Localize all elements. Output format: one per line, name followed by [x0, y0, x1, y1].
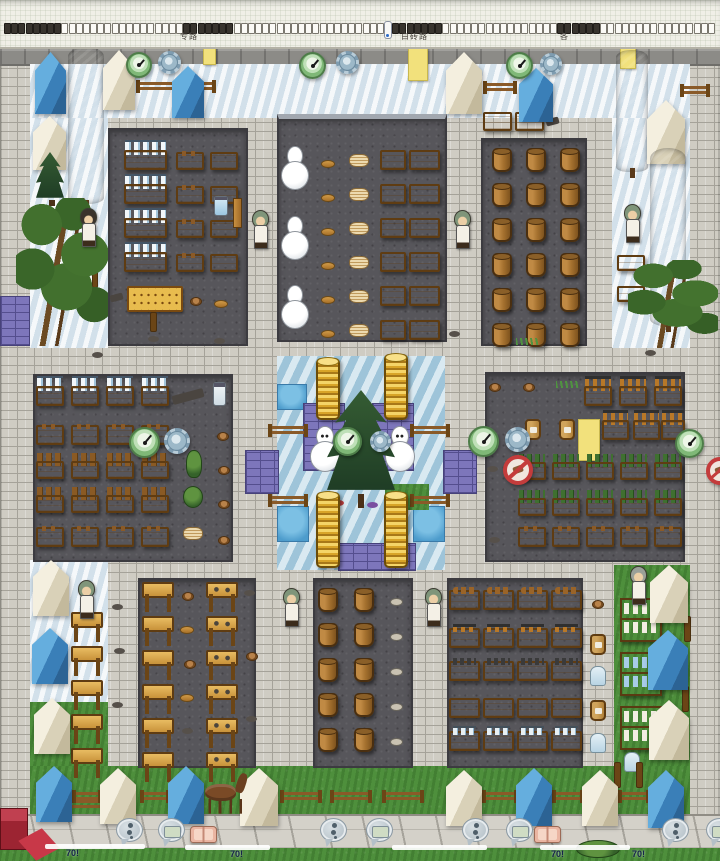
wooden-table[interactable]	[517, 661, 548, 681]
wooden-crate[interactable]	[380, 150, 406, 170]
wooden-table[interactable]	[517, 628, 548, 648]
item-slot-icon[interactable]	[377, 23, 384, 34]
item-slot-icon[interactable]	[11, 23, 18, 34]
gear-icon[interactable]	[370, 431, 391, 452]
bowl[interactable]	[390, 668, 403, 676]
bread-table[interactable]	[141, 487, 169, 513]
small-item[interactable]	[244, 590, 255, 596]
wooden-crate[interactable]	[409, 184, 440, 204]
item-slot-icon[interactable]	[112, 23, 119, 34]
wooden-table[interactable]	[586, 527, 614, 547]
item-slot-icon[interactable]	[327, 23, 334, 34]
clay-pot[interactable]	[492, 323, 512, 347]
pie[interactable]	[190, 297, 202, 306]
item-slot-icon[interactable]	[471, 23, 478, 34]
item-slot-icon[interactable]	[658, 23, 665, 34]
bottle-table[interactable]	[106, 376, 134, 406]
speech-bubble-icon[interactable]	[366, 818, 393, 842]
pie[interactable]	[217, 432, 229, 441]
item-slot-icon[interactable]	[643, 23, 650, 34]
clock-icon[interactable]	[506, 52, 533, 79]
item-slot-icon[interactable]	[119, 23, 126, 34]
item-slot-icon[interactable]	[334, 23, 341, 34]
item-slot-icon[interactable]	[363, 23, 370, 34]
wooden-table[interactable]	[483, 661, 514, 681]
item-slot-icon[interactable]	[104, 23, 111, 34]
wooden-fence[interactable]	[680, 84, 710, 97]
tent[interactable]	[32, 628, 68, 684]
bottle-rack-table[interactable]	[654, 454, 682, 480]
wooden-table[interactable]	[517, 731, 548, 751]
clay-pot[interactable]	[318, 658, 338, 682]
item-slot-icon[interactable]	[255, 23, 262, 34]
item-slot-icon[interactable]	[650, 23, 657, 34]
wooden-table[interactable]	[210, 254, 238, 272]
cypress-tree[interactable]	[68, 47, 104, 204]
wooden-table[interactable]	[449, 590, 480, 610]
item-slot-icon[interactable]	[305, 23, 312, 34]
bottle-rack-table[interactable]	[552, 490, 580, 516]
clay-pot[interactable]	[318, 693, 338, 717]
item-slot-icon[interactable]	[298, 23, 305, 34]
item-slot-icon[interactable]	[370, 23, 377, 34]
item-slot-icon[interactable]	[291, 23, 298, 34]
plate-stack[interactable]	[349, 256, 369, 269]
bottle-rack-table[interactable]	[620, 454, 648, 480]
wooden-crate[interactable]	[409, 150, 440, 170]
item-slot-icon[interactable]	[262, 23, 269, 34]
clay-pot[interactable]	[526, 148, 546, 172]
bottle-rack-table[interactable]	[586, 490, 614, 516]
wood-post[interactable]	[636, 762, 643, 788]
pie[interactable]	[218, 466, 230, 475]
bread-table[interactable]	[106, 487, 134, 513]
glass-jar[interactable]	[214, 196, 228, 216]
bread-table[interactable]	[106, 453, 134, 479]
open-book[interactable]	[534, 826, 561, 843]
wooden-fence[interactable]	[552, 790, 584, 803]
wooden-fence[interactable]	[268, 424, 308, 437]
wooden-table[interactable]	[551, 628, 582, 648]
clay-pot[interactable]	[354, 658, 374, 682]
wooden-fence[interactable]	[140, 790, 170, 803]
clay-pot[interactable]	[492, 183, 512, 207]
item-slot-icon[interactable]	[226, 23, 233, 34]
clock-icon[interactable]	[126, 52, 152, 78]
bread-loaf[interactable]	[180, 694, 194, 702]
item-slot-icon[interactable]	[341, 23, 348, 34]
clay-pot[interactable]	[526, 253, 546, 277]
plant-sprout[interactable]	[556, 381, 580, 388]
wooden-table[interactable]	[206, 684, 238, 714]
pie[interactable]	[182, 592, 194, 601]
wooden-table[interactable]	[449, 628, 480, 648]
snowman[interactable]	[281, 146, 307, 190]
thermometer-icon[interactable]	[384, 21, 392, 39]
bottle-table[interactable]	[124, 174, 167, 204]
item-slot-icon[interactable]	[500, 23, 507, 34]
bowl[interactable]	[390, 633, 403, 641]
wooden-table[interactable]	[176, 220, 204, 238]
clay-pot[interactable]	[492, 288, 512, 312]
item-slot-icon[interactable]	[90, 23, 97, 34]
wooden-fence[interactable]	[382, 790, 424, 803]
clay-pot[interactable]	[492, 148, 512, 172]
clay-pot[interactable]	[354, 693, 374, 717]
bread-loaf[interactable]	[321, 296, 335, 304]
storage-crock[interactable]	[590, 634, 606, 655]
carved-sign[interactable]	[127, 286, 183, 312]
pie[interactable]	[218, 536, 230, 545]
small-item[interactable]	[246, 716, 257, 722]
bottle-rack-table[interactable]	[518, 490, 546, 516]
item-slot-icon[interactable]	[450, 23, 457, 34]
small-item[interactable]	[92, 352, 103, 358]
gear-icon[interactable]	[336, 51, 359, 74]
plate-stack[interactable]	[183, 527, 203, 540]
plate-stack[interactable]	[349, 324, 369, 337]
bread-table[interactable]	[36, 487, 64, 513]
wooden-table[interactable]	[517, 698, 548, 718]
bread-loaf[interactable]	[321, 194, 335, 202]
clay-pot[interactable]	[492, 218, 512, 242]
gear-icon[interactable]	[158, 51, 181, 74]
item-slot-icon[interactable]	[464, 23, 471, 34]
tent[interactable]	[34, 698, 70, 754]
item-slot-icon[interactable]	[708, 23, 715, 34]
item-slot-icon[interactable]	[435, 23, 442, 34]
clay-pot[interactable]	[354, 728, 374, 752]
item-slot-icon[interactable]	[686, 23, 693, 34]
item-slot-icon[interactable]	[234, 23, 241, 34]
tent[interactable]	[648, 630, 688, 690]
tent[interactable]	[100, 768, 136, 824]
bottle-table[interactable]	[141, 376, 169, 406]
wooden-table[interactable]	[206, 650, 238, 680]
wooden-table[interactable]	[142, 582, 174, 612]
wooden-table[interactable]	[449, 731, 480, 751]
item-slot-icon[interactable]	[241, 23, 248, 34]
item-slot-icon[interactable]	[521, 23, 528, 34]
item-slot-icon[interactable]	[600, 23, 607, 34]
item-slot-icon[interactable]	[428, 23, 435, 34]
speech-bubble-icon[interactable]	[462, 818, 489, 842]
item-slot-icon[interactable]	[83, 23, 90, 34]
clay-pot[interactable]	[560, 183, 580, 207]
bottle-rack-table[interactable]	[633, 410, 660, 440]
no-entry-icon[interactable]	[706, 457, 720, 485]
clock-icon[interactable]	[129, 427, 160, 458]
villager[interactable]	[281, 588, 301, 628]
bottle-table[interactable]	[124, 140, 167, 170]
item-slot-icon[interactable]	[514, 23, 521, 34]
pine-tree[interactable]	[628, 260, 718, 348]
bottle-table[interactable]	[36, 376, 64, 406]
clay-pot[interactable]	[318, 728, 338, 752]
clay-pot[interactable]	[560, 288, 580, 312]
villager[interactable]	[250, 210, 270, 250]
wooden-table[interactable]	[71, 527, 99, 547]
wooden-fence[interactable]	[410, 494, 450, 507]
item-slot-icon[interactable]	[478, 23, 485, 34]
wood-plank[interactable]	[233, 198, 242, 228]
item-slot-icon[interactable]	[312, 23, 319, 34]
pie[interactable]	[246, 652, 258, 661]
small-item[interactable]	[114, 648, 125, 654]
paper-note[interactable]	[408, 47, 428, 81]
wooden-fence[interactable]	[330, 790, 372, 803]
gear-icon[interactable]	[540, 53, 562, 75]
wooden-fence[interactable]	[618, 790, 650, 803]
wooden-table[interactable]	[449, 661, 480, 681]
bottle-rack-table[interactable]	[654, 490, 682, 516]
item-slot-icon[interactable]	[4, 23, 11, 34]
pie[interactable]	[218, 500, 230, 509]
item-slot-icon[interactable]	[392, 23, 399, 34]
speech-bubble-icon[interactable]	[506, 818, 533, 842]
wooden-fence[interactable]	[482, 790, 518, 803]
bush[interactable]	[186, 450, 202, 478]
wooden-table[interactable]	[210, 152, 238, 170]
wooden-table[interactable]	[71, 748, 103, 778]
wooden-table[interactable]	[483, 628, 514, 648]
wooden-table[interactable]	[106, 527, 134, 547]
item-slot-icon[interactable]	[162, 23, 169, 34]
plate-stack[interactable]	[349, 154, 369, 167]
item-slot-icon[interactable]	[76, 23, 83, 34]
plate-stack[interactable]	[349, 222, 369, 235]
tent[interactable]	[168, 766, 204, 824]
tent[interactable]	[582, 770, 618, 826]
bottle-table[interactable]	[124, 208, 167, 238]
item-slot-icon[interactable]	[219, 23, 226, 34]
wooden-table[interactable]	[206, 718, 238, 748]
wooden-crate[interactable]	[380, 252, 406, 272]
snowman[interactable]	[281, 285, 307, 329]
speech-bubble-icon[interactable]	[320, 818, 347, 842]
small-item[interactable]	[148, 336, 159, 342]
item-slot-icon[interactable]	[248, 23, 255, 34]
item-slot-icon[interactable]	[47, 23, 54, 34]
bottle-rack-table[interactable]	[619, 376, 647, 406]
item-slot-icon[interactable]	[40, 23, 47, 34]
item-slot-icon[interactable]	[61, 23, 68, 34]
item-slot-icon[interactable]	[169, 23, 176, 34]
clay-pot[interactable]	[526, 218, 546, 242]
item-slot-icon[interactable]	[348, 23, 355, 34]
snowman[interactable]	[281, 216, 307, 260]
wooden-table[interactable]	[71, 646, 103, 676]
item-slot-icon[interactable]	[536, 23, 543, 34]
item-slot-icon[interactable]	[672, 23, 679, 34]
item-slot-icon[interactable]	[593, 23, 600, 34]
bread-table[interactable]	[36, 453, 64, 479]
small-item[interactable]	[449, 331, 460, 337]
item-slot-icon[interactable]	[507, 23, 514, 34]
wooden-table[interactable]	[551, 590, 582, 610]
bowl[interactable]	[390, 598, 403, 606]
wooden-crate[interactable]	[409, 286, 440, 306]
item-slot-icon[interactable]	[529, 23, 536, 34]
villager[interactable]	[76, 580, 96, 620]
bottle-rack-table[interactable]	[602, 410, 629, 440]
wooden-table[interactable]	[483, 698, 514, 718]
wooden-crate[interactable]	[483, 112, 512, 131]
plate-stack[interactable]	[349, 290, 369, 303]
item-slot-icon[interactable]	[629, 23, 636, 34]
wooden-table[interactable]	[517, 590, 548, 610]
plate-stack[interactable]	[349, 188, 369, 201]
item-slot-icon[interactable]	[636, 23, 643, 34]
item-slot-icon[interactable]	[18, 23, 25, 34]
open-book[interactable]	[190, 826, 217, 843]
storage-crock[interactable]	[559, 419, 575, 440]
item-slot-icon[interactable]	[140, 23, 147, 34]
clay-pot[interactable]	[492, 253, 512, 277]
bottle-table[interactable]	[71, 376, 99, 406]
clay-pot[interactable]	[560, 253, 580, 277]
pie[interactable]	[592, 600, 604, 609]
storage-crock[interactable]	[590, 700, 606, 721]
villager[interactable]	[423, 588, 443, 628]
bread-loaf[interactable]	[321, 160, 335, 168]
tent[interactable]	[649, 700, 689, 760]
item-slot-icon[interactable]	[198, 23, 205, 34]
bowl[interactable]	[390, 738, 403, 746]
wooden-table[interactable]	[483, 590, 514, 610]
speech-bubble-icon[interactable]	[662, 818, 689, 842]
wooden-crate[interactable]	[380, 320, 406, 340]
gear-icon[interactable]	[164, 428, 190, 454]
wooden-table[interactable]	[483, 731, 514, 751]
bottle-rack-table[interactable]	[586, 454, 614, 480]
pie[interactable]	[184, 660, 196, 669]
paper-note[interactable]	[203, 47, 216, 65]
wooden-crate[interactable]	[409, 252, 440, 272]
bread-loaf[interactable]	[321, 262, 335, 270]
wooden-table[interactable]	[142, 684, 174, 714]
item-slot-icon[interactable]	[486, 23, 493, 34]
small-item[interactable]	[112, 702, 123, 708]
wooden-crate[interactable]	[409, 320, 440, 340]
bread-loaf[interactable]	[214, 300, 228, 308]
bottle-rack-table[interactable]	[654, 376, 682, 406]
bottle-rack-table[interactable]	[584, 376, 612, 406]
item-slot-icon[interactable]	[147, 23, 154, 34]
villager[interactable]	[452, 210, 472, 250]
clock-icon[interactable]	[468, 426, 499, 457]
item-slot-icon[interactable]	[586, 23, 593, 34]
speech-bubble-icon[interactable]	[158, 818, 185, 842]
small-item[interactable]	[112, 604, 123, 610]
villager[interactable]	[628, 566, 648, 606]
speech-bubble-icon[interactable]	[116, 818, 143, 842]
wooden-table[interactable]	[176, 186, 204, 204]
plant-sprout[interactable]	[516, 338, 540, 345]
clay-pot[interactable]	[354, 623, 374, 647]
bread-table[interactable]	[71, 487, 99, 513]
bell-jar[interactable]	[590, 666, 606, 686]
item-slot-icon[interactable]	[579, 23, 586, 34]
villager[interactable]	[78, 208, 98, 248]
clay-pot[interactable]	[526, 288, 546, 312]
item-slot-icon[interactable]	[97, 23, 104, 34]
wood-post[interactable]	[150, 312, 157, 332]
item-slot-icon[interactable]	[615, 23, 622, 34]
item-slot-icon[interactable]	[212, 23, 219, 34]
bottle-rack-table[interactable]	[552, 454, 580, 480]
item-slot-icon[interactable]	[126, 23, 133, 34]
item-slot-icon[interactable]	[269, 23, 276, 34]
wooden-table[interactable]	[36, 527, 64, 547]
clay-pot[interactable]	[354, 588, 374, 612]
glass-jar[interactable]	[213, 382, 226, 406]
small-item[interactable]	[645, 350, 656, 356]
item-slot-icon[interactable]	[493, 23, 500, 34]
item-slot-icon[interactable]	[665, 23, 672, 34]
wooden-table[interactable]	[551, 731, 582, 751]
bread-loaf[interactable]	[321, 228, 335, 236]
wooden-table[interactable]	[518, 527, 546, 547]
item-slot-icon[interactable]	[133, 23, 140, 34]
tent[interactable]	[35, 52, 66, 114]
no-entry-icon[interactable]	[503, 455, 533, 485]
wooden-table[interactable]	[71, 425, 99, 445]
bread-loaf[interactable]	[180, 626, 194, 634]
item-slot-icon[interactable]	[33, 23, 40, 34]
wooden-table[interactable]	[551, 661, 582, 681]
wooden-table[interactable]	[142, 718, 174, 748]
wooden-table[interactable]	[552, 527, 580, 547]
small-item[interactable]	[487, 466, 498, 472]
clay-pot[interactable]	[560, 148, 580, 172]
wooden-crate[interactable]	[380, 184, 406, 204]
wooden-fence[interactable]	[410, 424, 450, 437]
item-slot-icon[interactable]	[457, 23, 464, 34]
item-slot-icon[interactable]	[320, 23, 327, 34]
small-item[interactable]	[182, 728, 193, 734]
item-slot-icon[interactable]	[277, 23, 284, 34]
pie[interactable]	[523, 383, 535, 392]
wooden-table[interactable]	[206, 582, 238, 612]
bell-jar[interactable]	[590, 733, 606, 753]
cypress-tree[interactable]	[616, 50, 648, 172]
clay-pot[interactable]	[318, 623, 338, 647]
item-slot-icon[interactable]	[205, 23, 212, 34]
wooden-crate[interactable]	[380, 286, 406, 306]
wooden-table[interactable]	[36, 425, 64, 445]
wooden-table[interactable]	[142, 650, 174, 680]
wooden-crate[interactable]	[380, 218, 406, 238]
item-slot-icon[interactable]	[550, 23, 557, 34]
wooden-table[interactable]	[620, 527, 648, 547]
item-slot-icon[interactable]	[442, 23, 449, 34]
small-item[interactable]	[489, 537, 500, 543]
wooden-crate[interactable]	[409, 218, 440, 238]
wooden-fence[interactable]	[268, 494, 308, 507]
wooden-table[interactable]	[551, 698, 582, 718]
wooden-table[interactable]	[176, 152, 204, 170]
item-slot-icon[interactable]	[572, 23, 579, 34]
gear-icon[interactable]	[505, 427, 530, 452]
wooden-table[interactable]	[71, 714, 103, 744]
tent[interactable]	[446, 52, 482, 114]
tent[interactable]	[36, 766, 72, 822]
villager[interactable]	[622, 204, 642, 244]
item-slot-icon[interactable]	[69, 23, 76, 34]
item-slot-icon[interactable]	[284, 23, 291, 34]
item-slot-icon[interactable]	[54, 23, 61, 34]
